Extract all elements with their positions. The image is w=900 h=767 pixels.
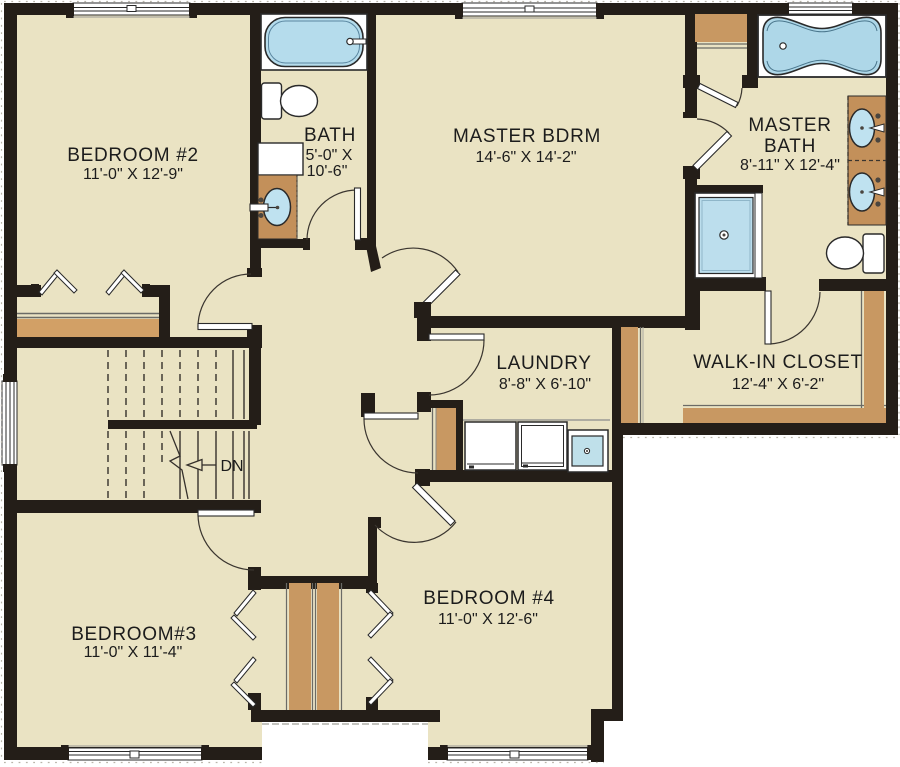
svg-text:8'-8" X 6'-10": 8'-8" X 6'-10": [499, 376, 591, 393]
svg-text:11'-0" X 12'-9": 11'-0" X 12'-9": [83, 166, 183, 183]
svg-text:MASTER BDRM: MASTER BDRM: [453, 126, 601, 147]
svg-text:BEDROOM #2: BEDROOM #2: [67, 145, 199, 166]
svg-text:DN: DN: [220, 458, 243, 475]
svg-text:MASTER: MASTER: [748, 115, 831, 136]
svg-text:BATH: BATH: [764, 136, 816, 157]
svg-text:8'-11" X 12'-4": 8'-11" X 12'-4": [740, 157, 840, 174]
svg-text:LAUNDRY: LAUNDRY: [496, 353, 591, 374]
svg-text:14'-6" X 14'-2": 14'-6" X 14'-2": [475, 149, 576, 166]
svg-text:BEDROOM #4: BEDROOM #4: [423, 588, 555, 609]
svg-text:11'-0" X 11'-4": 11'-0" X 11'-4": [84, 644, 183, 661]
svg-text:BEDROOM#3: BEDROOM#3: [71, 624, 197, 645]
svg-text:5'-0" X: 5'-0" X: [306, 147, 353, 164]
svg-text:10'-6": 10'-6": [307, 163, 348, 180]
svg-text:BATH: BATH: [304, 125, 356, 146]
svg-text:WALK-IN CLOSET: WALK-IN CLOSET: [693, 352, 863, 373]
svg-text:12'-4" X 6'-2": 12'-4" X 6'-2": [732, 376, 824, 393]
svg-text:11'-0" X 12'-6": 11'-0" X 12'-6": [438, 611, 538, 628]
